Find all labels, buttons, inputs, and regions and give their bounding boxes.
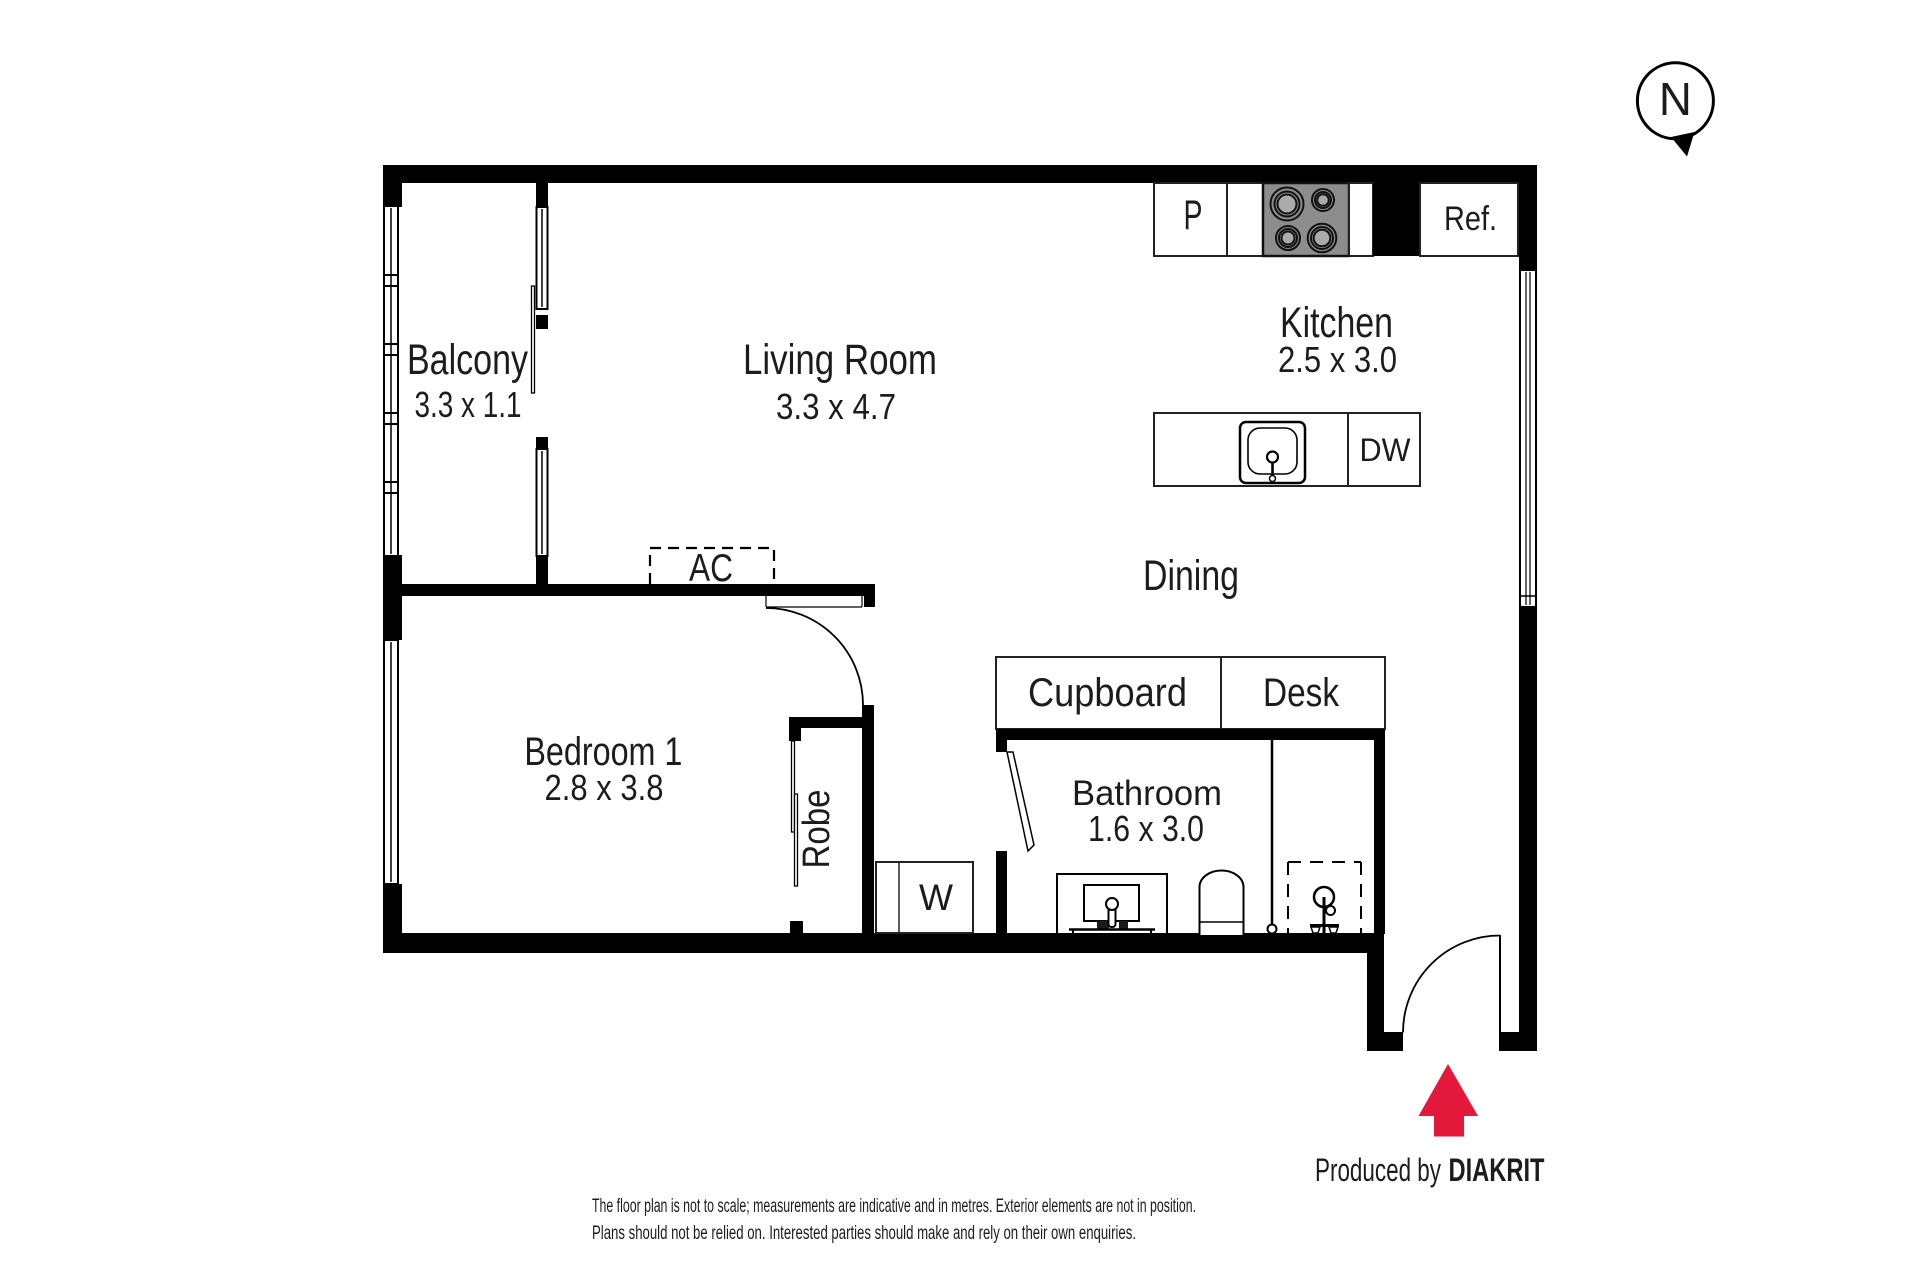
svg-text:DW: DW [1360, 432, 1412, 468]
svg-text:W: W [919, 877, 953, 918]
svg-text:AC: AC [689, 547, 733, 590]
svg-text:3.3 x 4.7: 3.3 x 4.7 [776, 386, 896, 427]
svg-text:3.3 x 1.1: 3.3 x 1.1 [415, 384, 522, 425]
svg-text:Produced by: Produced by [1315, 1152, 1441, 1188]
svg-text:DIAKRIT: DIAKRIT [1449, 1152, 1545, 1188]
svg-text:Living Room: Living Room [743, 336, 937, 384]
svg-text:2.5 x 3.0: 2.5 x 3.0 [1278, 339, 1397, 380]
svg-text:P: P [1184, 191, 1203, 238]
svg-text:1.6 x 3.0: 1.6 x 3.0 [1088, 808, 1204, 849]
svg-text:N: N [1659, 73, 1692, 125]
svg-text:Balcony: Balcony [407, 336, 528, 384]
svg-text:2.8 x 3.8: 2.8 x 3.8 [545, 767, 664, 808]
svg-text:Plans should not be relied on.: Plans should not be relied on. Intereste… [592, 1223, 1136, 1244]
svg-text:Robe: Robe [796, 790, 838, 869]
svg-text:Dining: Dining [1143, 552, 1239, 600]
svg-text:Cupboard: Cupboard [1028, 671, 1187, 715]
svg-text:Desk: Desk [1263, 671, 1340, 715]
svg-text:The floor plan is not to scale: The floor plan is not to scale; measurem… [592, 1196, 1196, 1217]
svg-text:Ref.: Ref. [1444, 200, 1497, 238]
